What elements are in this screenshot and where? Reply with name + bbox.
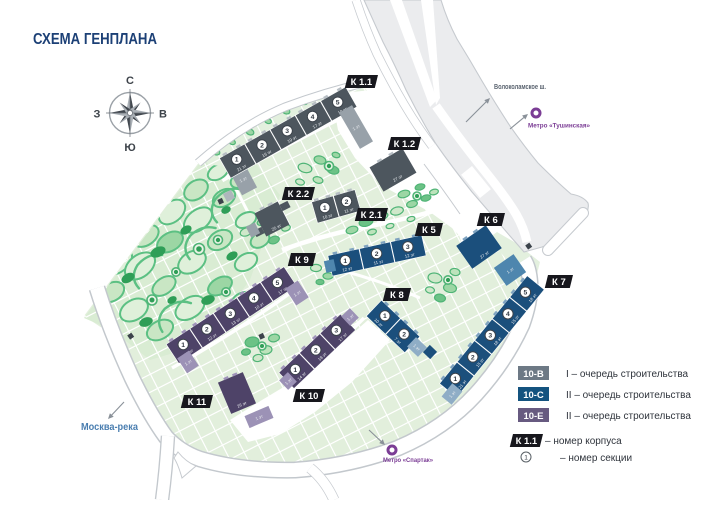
svg-text:К 1.1: К 1.1 (516, 436, 538, 447)
svg-text:3: 3 (334, 328, 338, 335)
svg-text:С: С (126, 75, 134, 87)
svg-text:5: 5 (524, 290, 528, 297)
svg-text:2: 2 (375, 251, 379, 258)
svg-text:I – очередь строительства: I – очередь строительства (566, 369, 689, 380)
svg-text:– номер секции: – номер секции (560, 453, 632, 464)
svg-text:4: 4 (252, 295, 256, 302)
svg-text:1: 1 (235, 157, 239, 164)
svg-text:5: 5 (276, 280, 280, 287)
svg-text:1: 1 (383, 313, 387, 320)
svg-text:1: 1 (181, 342, 185, 349)
svg-text:К 8: К 8 (390, 290, 404, 301)
svg-text:К 10: К 10 (299, 391, 318, 402)
svg-text:К 2.2: К 2.2 (288, 189, 310, 200)
svg-text:В: В (159, 109, 167, 121)
svg-text:З: З (94, 109, 101, 121)
svg-text:4: 4 (311, 114, 315, 121)
svg-text:3: 3 (488, 333, 492, 340)
svg-text:К 5: К 5 (422, 225, 436, 236)
svg-text:1: 1 (343, 258, 347, 265)
svg-text:3: 3 (228, 311, 232, 318)
svg-text:2: 2 (260, 142, 264, 149)
svg-text:2: 2 (471, 354, 475, 361)
svg-text:4: 4 (506, 311, 510, 318)
svg-text:1: 1 (323, 205, 327, 212)
svg-text:1: 1 (293, 367, 297, 374)
svg-text:2: 2 (402, 332, 406, 339)
svg-text:3: 3 (285, 128, 289, 135)
svg-text:Москва-река: Москва-река (81, 422, 138, 433)
svg-text:К 11: К 11 (188, 397, 207, 408)
svg-text:К 9: К 9 (295, 255, 309, 266)
svg-text:К 1.2: К 1.2 (394, 139, 416, 150)
svg-text:СХЕМА ГЕНПЛАНА: СХЕМА ГЕНПЛАНА (33, 31, 157, 48)
svg-text:5: 5 (336, 100, 340, 107)
svg-text:II – очередь строительства: II – очередь строительства (566, 390, 691, 401)
svg-text:Ю: Ю (124, 142, 135, 154)
svg-text:К 7: К 7 (552, 277, 566, 288)
svg-text:2: 2 (205, 326, 209, 333)
svg-text:1: 1 (453, 376, 457, 383)
svg-text:К 1.1: К 1.1 (351, 77, 373, 88)
svg-text:К 2.1: К 2.1 (361, 210, 383, 221)
svg-text:– номер корпуса: – номер корпуса (545, 436, 622, 447)
svg-text:Волоколамское ш.: Волоколамское ш. (494, 84, 546, 91)
svg-text:10-Е: 10-Е (523, 411, 543, 422)
svg-text:1: 1 (524, 455, 528, 462)
svg-text:10-С: 10-С (523, 390, 544, 401)
svg-text:Метро «Тушинская»: Метро «Тушинская» (528, 123, 590, 130)
svg-text:2: 2 (314, 347, 318, 354)
svg-text:К 6: К 6 (484, 215, 498, 226)
svg-text:3: 3 (406, 244, 410, 251)
svg-text:10-В: 10-В (523, 369, 544, 380)
svg-text:2: 2 (345, 199, 349, 206)
svg-text:Метро «Спартак»: Метро «Спартак» (383, 457, 433, 464)
svg-text:II – очередь строительства: II – очередь строительства (566, 411, 691, 422)
